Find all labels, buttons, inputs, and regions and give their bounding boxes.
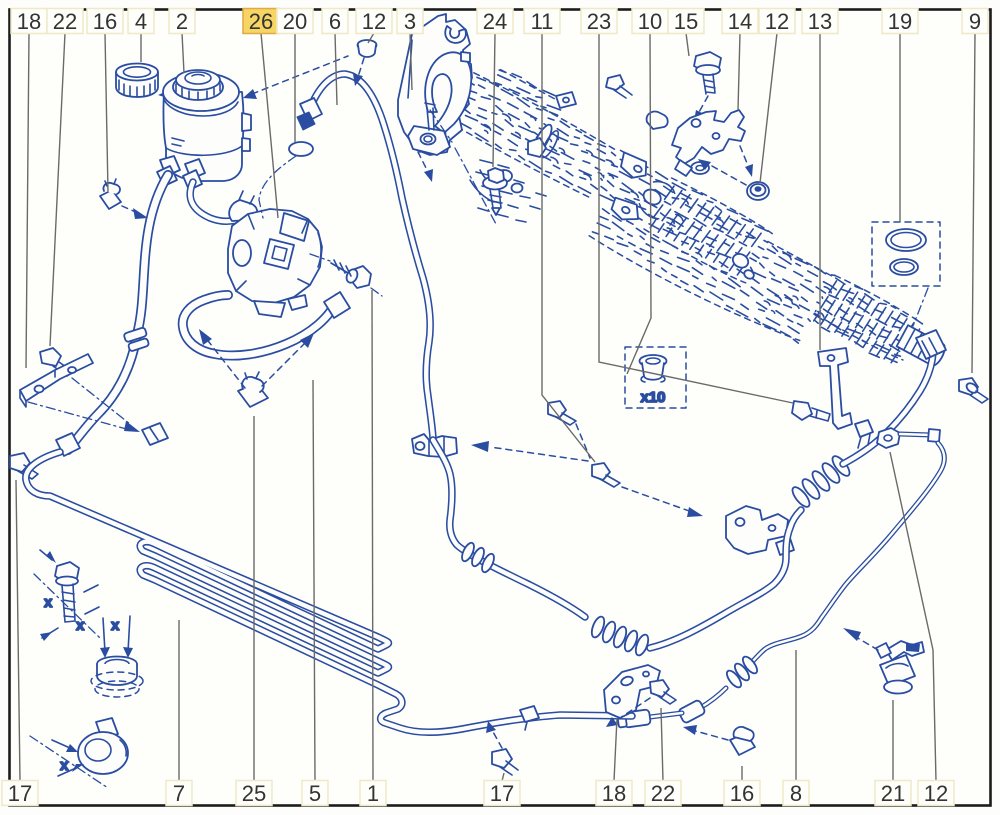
svg-text:4: 4 xyxy=(135,9,147,34)
svg-text:7: 7 xyxy=(173,781,185,806)
svg-text:13: 13 xyxy=(808,9,832,34)
svg-text:16: 16 xyxy=(93,9,117,34)
svg-text:21: 21 xyxy=(881,781,905,806)
svg-text:5: 5 xyxy=(309,781,321,806)
svg-text:26: 26 xyxy=(249,9,273,34)
svg-text:23: 23 xyxy=(587,9,611,34)
svg-text:x: x xyxy=(111,617,120,634)
svg-text:18: 18 xyxy=(602,781,626,806)
svg-text:12: 12 xyxy=(362,9,386,34)
svg-text:15: 15 xyxy=(674,9,698,34)
svg-text:25: 25 xyxy=(242,781,266,806)
svg-text:19: 19 xyxy=(888,9,912,34)
svg-text:20: 20 xyxy=(283,9,307,34)
svg-text:x10: x10 xyxy=(640,389,665,406)
svg-text:3: 3 xyxy=(404,9,416,34)
svg-text:x: x xyxy=(60,757,69,774)
svg-text:22: 22 xyxy=(53,9,77,34)
svg-text:9: 9 xyxy=(969,9,981,34)
svg-text:17: 17 xyxy=(8,781,32,806)
svg-text:2: 2 xyxy=(176,9,188,34)
svg-text:8: 8 xyxy=(790,781,802,806)
svg-text:6: 6 xyxy=(329,9,341,34)
svg-text:17: 17 xyxy=(490,781,514,806)
svg-text:12: 12 xyxy=(924,781,948,806)
svg-text:16: 16 xyxy=(730,781,754,806)
svg-text:24: 24 xyxy=(483,9,507,34)
svg-text:18: 18 xyxy=(17,9,41,34)
svg-text:11: 11 xyxy=(531,9,554,34)
svg-text:10: 10 xyxy=(638,9,662,34)
svg-text:x: x xyxy=(76,617,85,634)
svg-text:22: 22 xyxy=(651,781,675,806)
svg-text:12: 12 xyxy=(765,9,789,34)
svg-text:14: 14 xyxy=(728,9,752,34)
svg-text:1: 1 xyxy=(367,781,379,806)
svg-text:x: x xyxy=(44,594,53,611)
